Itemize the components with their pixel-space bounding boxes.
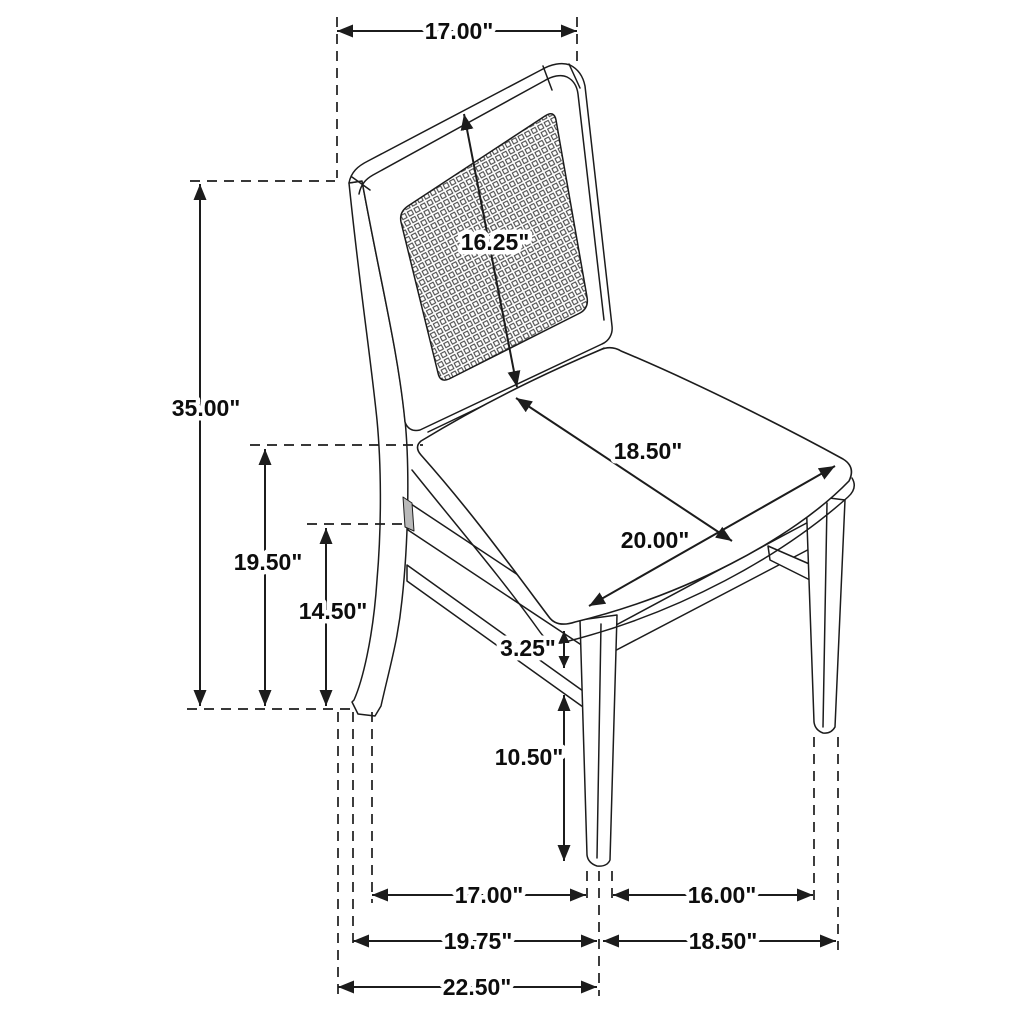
dim-label-leg-height: 10.50" — [495, 744, 563, 770]
dimension-diagram: 17.00" 16.25" 35.00" 19.50" 14.50" 18.50… — [0, 0, 1024, 1024]
dim-overall-height: 35.00" — [172, 184, 240, 706]
dim-label-apron-height: 3.25" — [500, 635, 556, 661]
dim-floor-depth-overall: 22.50" — [338, 974, 597, 1000]
dim-label-seat-width: 20.00" — [621, 527, 689, 553]
chair-dimension-drawing: 17.00" 16.25" 35.00" 19.50" 14.50" 18.50… — [0, 0, 1024, 1024]
dim-label-floor-depth-overall: 22.50" — [443, 974, 511, 1000]
dim-label-back-panel-diagonal: 16.25" — [461, 229, 529, 255]
dim-label-seat-frame-height: 14.50" — [299, 598, 367, 624]
dim-leg-height: 10.50" — [495, 695, 564, 861]
dim-floor-depth-mid: 19.75" — [353, 928, 597, 954]
dim-label-floor-depth-inner: 17.00" — [455, 882, 523, 908]
dim-label-floor-depth-mid: 19.75" — [444, 928, 512, 954]
dim-seat-frame-height: 14.50" — [299, 528, 367, 706]
dim-label-seat-depth: 18.50" — [614, 438, 682, 464]
dim-floor-depth-inner: 17.00" — [372, 882, 586, 908]
dim-label-back-top-width: 17.00" — [425, 18, 493, 44]
dim-label-floor-width-inner: 16.00" — [688, 882, 756, 908]
dim-label-overall-height: 35.00" — [172, 395, 240, 421]
dim-back-top-width: 17.00" — [337, 18, 577, 44]
dim-label-back-post-height: 19.50" — [234, 549, 302, 575]
chair-drawing — [349, 64, 854, 867]
chair-seat-frame-sliver — [403, 497, 414, 531]
dim-floor-width-outer: 18.50" — [603, 928, 836, 954]
dim-back-post-height: 19.50" — [234, 449, 302, 706]
dim-floor-width-inner: 16.00" — [613, 882, 813, 908]
dim-label-floor-width-outer: 18.50" — [689, 928, 757, 954]
